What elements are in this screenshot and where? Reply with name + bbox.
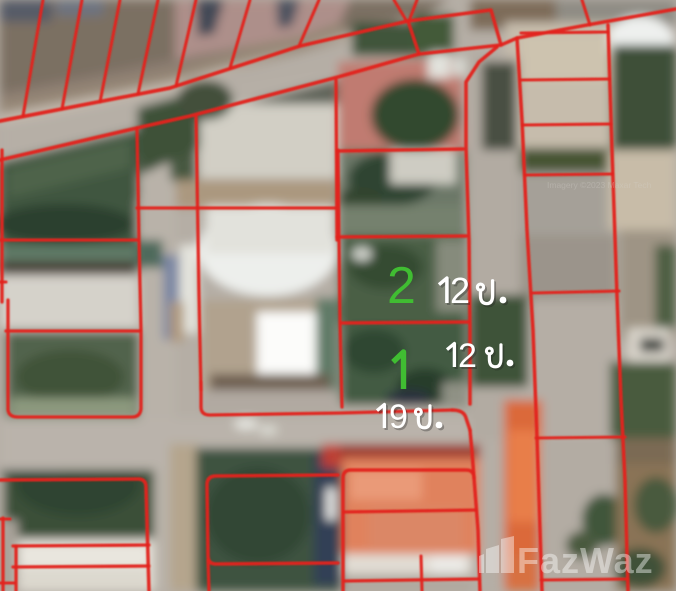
svg-text:9: 9 (389, 398, 408, 436)
svg-text:2: 2 (387, 257, 416, 315)
svg-text:FazWaz: FazWaz (517, 540, 654, 581)
svg-text:Imagery ©2023 Maxar Tech: Imagery ©2023 Maxar Tech (547, 180, 652, 190)
svg-text:2: 2 (450, 270, 470, 311)
svg-text:2: 2 (458, 337, 477, 375)
